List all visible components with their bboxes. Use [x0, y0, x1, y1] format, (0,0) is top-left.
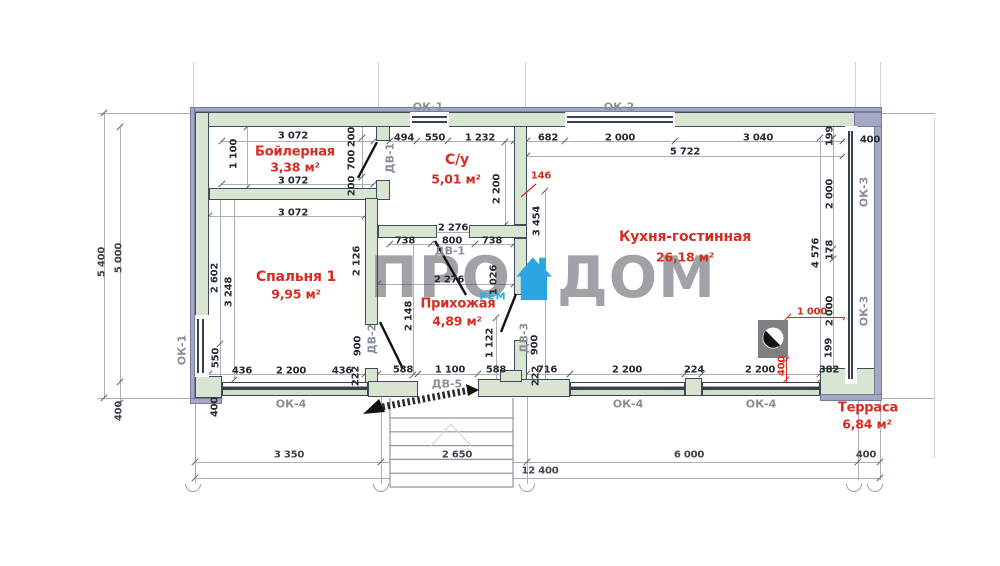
- overall-dimension-label: 5 400: [97, 247, 108, 277]
- dimension-label: 682: [538, 133, 558, 144]
- dim-line: [934, 118, 935, 458]
- dimension-label: 2 200: [612, 365, 642, 376]
- window-glazing: [567, 116, 673, 123]
- opening-tag: ОК-4: [276, 398, 307, 411]
- room-or-red-dimension-label: Прихожая: [420, 297, 495, 312]
- dimension-label: 3 072: [278, 131, 308, 142]
- dimension-label: 2 126: [352, 246, 363, 276]
- window-sill-band: [222, 382, 368, 396]
- wall-segment: [195, 376, 222, 398]
- dimension-label: 588: [393, 365, 413, 376]
- dim-line: [381, 396, 382, 484]
- dimension-label: 1 100: [435, 365, 465, 376]
- wall-segment: [478, 379, 570, 397]
- dimension-label: 2 148: [404, 301, 415, 331]
- dimension-label: 700: [347, 150, 358, 170]
- dim-line: [527, 141, 845, 142]
- dim-line: [195, 398, 196, 483]
- datum-arc: [519, 484, 535, 492]
- room-or-red-dimension-label: 3,38 м²: [270, 160, 320, 175]
- dim-line: [98, 398, 195, 399]
- dimension-label: 224: [684, 365, 704, 376]
- opening-tag: ОК-1: [413, 101, 444, 114]
- wall-segment: [685, 378, 702, 396]
- red-dimension-label: 400: [777, 356, 788, 376]
- room-or-red-dimension-label: 1 000: [797, 307, 827, 318]
- dimension-label: 2 000: [825, 179, 836, 209]
- dim-tick: [876, 474, 883, 481]
- wall-segment: [368, 381, 418, 397]
- room-or-red-dimension-label: 26,18 м²: [656, 250, 714, 265]
- dimension-label: 200: [347, 127, 358, 147]
- dimension-label: 550: [211, 348, 222, 368]
- opening-tag: ДВ-1: [384, 143, 397, 173]
- dimension-label: 2 200: [276, 366, 306, 377]
- dim-line: [881, 113, 935, 114]
- dim-line: [195, 462, 880, 463]
- dim-line: [525, 62, 526, 112]
- dimension-label: 2 276: [434, 275, 464, 286]
- room-or-red-dimension-label: 6,84 м²: [842, 417, 892, 432]
- dimension-label: 738: [395, 236, 415, 247]
- porch-stairs: [390, 398, 513, 487]
- dimension-label: 800: [442, 236, 462, 247]
- window-glazing: [848, 131, 853, 379]
- overall-dimension-label: 2 650: [442, 450, 472, 461]
- dimension-label: 400: [860, 135, 880, 146]
- dimension-label: 222: [351, 366, 362, 386]
- room-or-red-dimension-label: Терраса: [838, 401, 898, 416]
- wall-segment: [195, 112, 880, 127]
- dim-line: [855, 62, 856, 112]
- dimension-label: 3 454: [532, 206, 543, 236]
- dim-line: [505, 142, 506, 225]
- wall-segment: [514, 126, 527, 225]
- window-glazing: [197, 319, 204, 373]
- datum-arc: [185, 484, 201, 492]
- dimension-label: 382: [819, 365, 839, 376]
- window-glazing: [412, 116, 447, 123]
- room-or-red-dimension-label: С/у: [445, 152, 469, 168]
- opening-tag: ДВ-2: [366, 324, 379, 354]
- dim-line: [881, 398, 935, 399]
- dim-line: [193, 62, 194, 112]
- dimension-label: 2 276: [438, 223, 468, 234]
- dimension-label: 3 072: [278, 176, 308, 187]
- dimension-label: 199: [824, 338, 835, 358]
- opening-tag: ДВ-5: [432, 378, 462, 391]
- dimension-label: 199: [825, 126, 836, 146]
- dimension-label: 900: [530, 335, 541, 355]
- overall-dimension-label: 12 400: [521, 466, 558, 477]
- room-or-red-dimension-label: 4,89 м²: [432, 314, 482, 329]
- overall-dimension-label: 5 000: [114, 243, 125, 273]
- outer-wall-band: [874, 112, 882, 398]
- dimension-label: 200: [347, 176, 358, 196]
- overall-dimension-label: 3 350: [274, 450, 304, 461]
- outer-wall-band: [854, 112, 882, 127]
- room-or-red-dimension-label: 5,01 м²: [431, 172, 481, 187]
- overall-dimension-label: 6 000: [674, 450, 704, 461]
- dimension-label: 588: [486, 365, 506, 376]
- opening-tag: ОК-3: [858, 177, 871, 208]
- dimension-label: 1 122: [485, 328, 496, 358]
- dimension-label: 3 248: [224, 277, 235, 307]
- opening-tag: ОК-4: [613, 398, 644, 411]
- fireplace-symbol: [758, 320, 788, 358]
- datum-arc: [846, 484, 862, 492]
- opening-tag: ОК-3: [858, 296, 871, 327]
- room-or-red-dimension-label: 146: [531, 171, 551, 182]
- dim-line: [378, 62, 379, 112]
- wall-segment: [376, 126, 390, 141]
- house-icon: [514, 256, 554, 302]
- dimension-label: 3 040: [743, 133, 773, 144]
- opening-tag: ОК-2: [604, 101, 635, 114]
- opening-tag: ОК-1: [176, 335, 189, 366]
- dimension-label: 436: [332, 366, 352, 377]
- dimension-label: 1 026: [489, 265, 500, 295]
- dimension-label: 1 232: [465, 133, 495, 144]
- dimension-label: 716: [537, 365, 557, 376]
- dimension-label: 1 100: [229, 139, 240, 169]
- dimension-label: 494: [394, 133, 414, 144]
- dim-line: [98, 113, 195, 114]
- wall-segment: [376, 180, 390, 200]
- room-or-red-dimension-label: Кухня-гостинная: [619, 229, 751, 245]
- dimension-label: 2 200: [745, 365, 775, 376]
- dimension-label: 5 722: [670, 147, 700, 158]
- dimension-label: 3 072: [278, 208, 308, 219]
- room-or-red-dimension-label: Бойлерная: [255, 145, 335, 160]
- dim-line: [880, 62, 881, 112]
- dimension-label: 2 200: [492, 174, 503, 204]
- opening-tag: ОК-4: [746, 398, 777, 411]
- dimension-label: 4 576: [811, 238, 822, 268]
- dimension-label: 2 602: [210, 263, 221, 293]
- room-or-red-dimension-label: 9,95 м²: [271, 287, 321, 302]
- dimension-label: 738: [482, 236, 502, 247]
- floor-plan: ПРО ДОМ РЕМ ОК-1ОК-2ОК-1ОК-3ОК-3ОК-4ОК-4…: [0, 0, 1000, 566]
- dimension-label: 2 000: [605, 133, 635, 144]
- dimension-label: 400: [210, 397, 221, 417]
- overall-dimension-label: 400: [114, 401, 125, 421]
- overall-dimension-label: 400: [856, 450, 876, 461]
- dimension-label: 436: [232, 366, 252, 377]
- dim-line: [247, 127, 248, 188]
- dimension-label: 2 000: [825, 296, 836, 326]
- room-or-red-dimension-label: Спальня 1: [256, 269, 336, 285]
- datum-arc: [373, 484, 389, 492]
- dimension-label: 178: [825, 240, 836, 260]
- datum-arc: [867, 484, 883, 492]
- dimension-label: 900: [353, 336, 364, 356]
- window-sill-band: [702, 382, 820, 396]
- dim-line: [195, 478, 880, 479]
- dimension-label: 550: [425, 133, 445, 144]
- window-sill-band: [570, 382, 685, 396]
- outer-wall-band: [190, 107, 882, 112]
